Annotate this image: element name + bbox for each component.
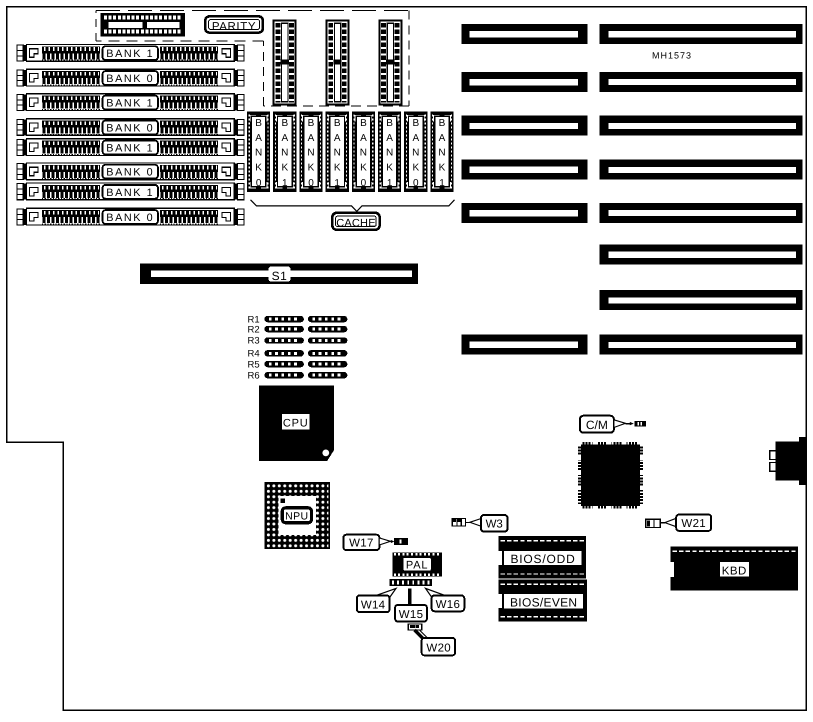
svg-text:A: A xyxy=(281,133,288,144)
svg-text:R6: R6 xyxy=(248,370,260,381)
svg-text:N: N xyxy=(281,148,288,159)
svg-text:N: N xyxy=(360,148,367,159)
svg-text:R5: R5 xyxy=(248,359,260,370)
svg-text:PAL: PAL xyxy=(406,560,428,572)
svg-text:BANK 0: BANK 0 xyxy=(106,212,154,224)
svg-text:A: A xyxy=(439,133,446,144)
svg-text:CACHE: CACHE xyxy=(336,217,376,229)
svg-text:B: B xyxy=(439,118,446,129)
svg-text:W21: W21 xyxy=(681,518,706,530)
svg-text:0: 0 xyxy=(413,178,419,189)
svg-text:PARITY: PARITY xyxy=(212,21,256,33)
svg-text:N: N xyxy=(438,148,445,159)
svg-text:K: K xyxy=(334,162,341,173)
svg-text:B: B xyxy=(360,118,367,129)
svg-text:N: N xyxy=(386,148,393,159)
svg-text:K: K xyxy=(360,162,367,173)
svg-text:A: A xyxy=(334,133,341,144)
svg-text:A: A xyxy=(412,133,419,144)
svg-text:K: K xyxy=(255,162,262,173)
svg-text:K: K xyxy=(439,162,446,173)
svg-text:N: N xyxy=(334,148,341,159)
svg-text:MH1573: MH1573 xyxy=(652,51,692,61)
svg-text:R4: R4 xyxy=(248,349,260,360)
svg-text:K: K xyxy=(386,162,393,173)
svg-text:NPU: NPU xyxy=(285,511,308,523)
svg-text:W15: W15 xyxy=(399,609,424,621)
svg-text:R2: R2 xyxy=(248,324,260,335)
svg-text:N: N xyxy=(412,148,419,159)
svg-text:B: B xyxy=(334,118,341,129)
svg-text:B: B xyxy=(386,118,393,129)
svg-text:A: A xyxy=(255,133,262,144)
svg-text:0: 0 xyxy=(256,178,262,189)
svg-text:N: N xyxy=(255,148,262,159)
svg-text:B: B xyxy=(255,118,262,129)
svg-text:W3: W3 xyxy=(486,519,503,531)
svg-text:1: 1 xyxy=(387,178,393,189)
svg-text:B: B xyxy=(412,118,419,129)
svg-text:BANK 1: BANK 1 xyxy=(106,187,154,199)
svg-text:KBD: KBD xyxy=(722,565,747,577)
svg-text:BANK 1: BANK 1 xyxy=(106,48,154,60)
svg-text:W16: W16 xyxy=(436,599,461,611)
svg-text:0: 0 xyxy=(308,178,314,189)
svg-text:1: 1 xyxy=(334,178,340,189)
svg-text:A: A xyxy=(386,133,393,144)
svg-text:1: 1 xyxy=(282,178,288,189)
svg-text:K: K xyxy=(308,162,315,173)
svg-text:N: N xyxy=(307,148,314,159)
svg-text:W17: W17 xyxy=(349,538,374,550)
svg-text:C/M: C/M xyxy=(586,418,608,432)
svg-text:0: 0 xyxy=(361,178,367,189)
svg-text:B: B xyxy=(308,118,315,129)
svg-text:BANK 0: BANK 0 xyxy=(106,73,154,85)
svg-text:BANK 1: BANK 1 xyxy=(106,143,154,155)
svg-text:A: A xyxy=(360,133,367,144)
svg-text:BANK 0: BANK 0 xyxy=(106,122,154,134)
svg-text:BIOS/EVEN: BIOS/EVEN xyxy=(510,596,577,610)
svg-text:BIOS/ODD: BIOS/ODD xyxy=(510,552,575,566)
svg-text:BANK 1: BANK 1 xyxy=(106,98,154,110)
svg-text:S1: S1 xyxy=(272,269,288,283)
svg-text:K: K xyxy=(281,162,288,173)
svg-text:R3: R3 xyxy=(248,336,260,347)
svg-text:W20: W20 xyxy=(426,642,451,654)
svg-text:B: B xyxy=(281,118,288,129)
svg-text:BANK 0: BANK 0 xyxy=(106,167,154,179)
svg-text:A: A xyxy=(308,133,315,144)
svg-text:W14: W14 xyxy=(361,600,386,612)
svg-text:1: 1 xyxy=(439,178,445,189)
svg-text:CPU: CPU xyxy=(283,418,309,430)
svg-text:K: K xyxy=(412,162,419,173)
